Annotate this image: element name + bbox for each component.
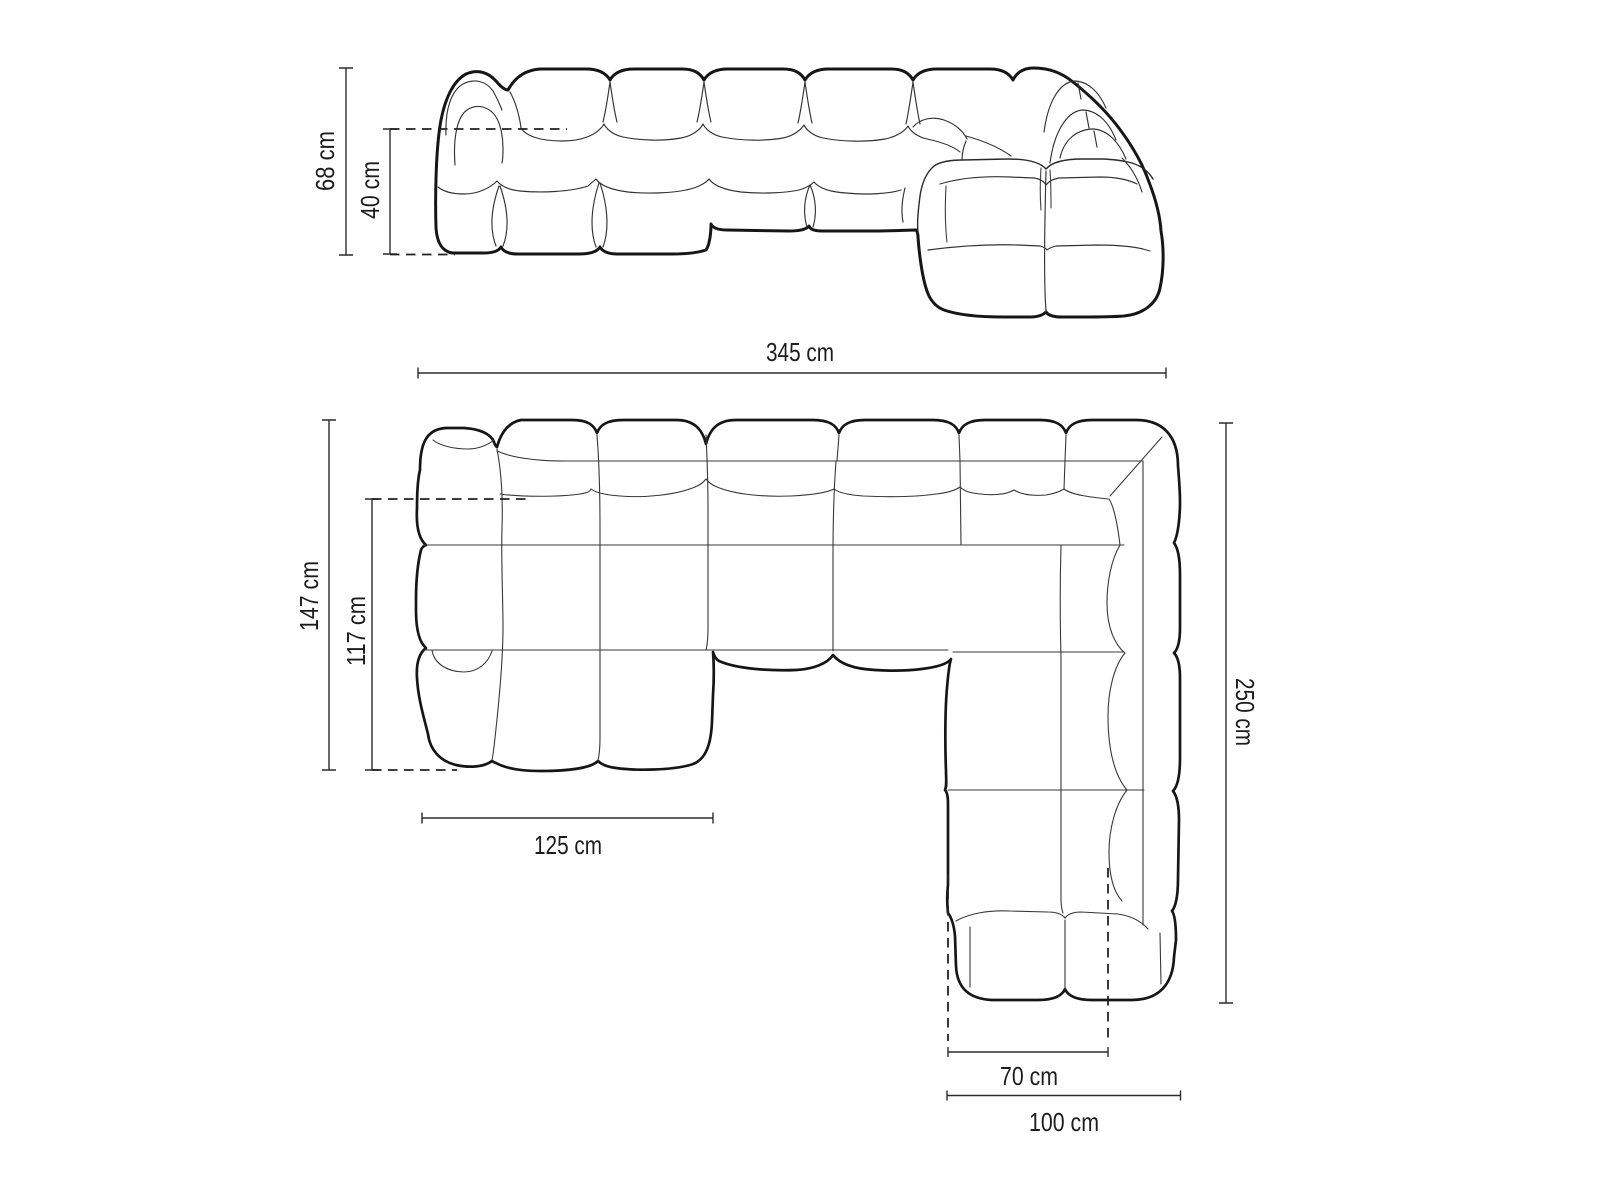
svg-text:70 cm: 70 cm	[1000, 1061, 1058, 1091]
svg-text:117 cm: 117 cm	[341, 596, 371, 666]
svg-text:68 cm: 68 cm	[310, 131, 340, 191]
svg-text:147 cm: 147 cm	[294, 561, 324, 631]
svg-text:100 cm: 100 cm	[1029, 1107, 1099, 1137]
svg-text:125 cm: 125 cm	[534, 830, 602, 860]
svg-text:345 cm: 345 cm	[766, 337, 834, 367]
svg-text:250 cm: 250 cm	[1230, 678, 1260, 746]
svg-text:40 cm: 40 cm	[355, 161, 385, 219]
